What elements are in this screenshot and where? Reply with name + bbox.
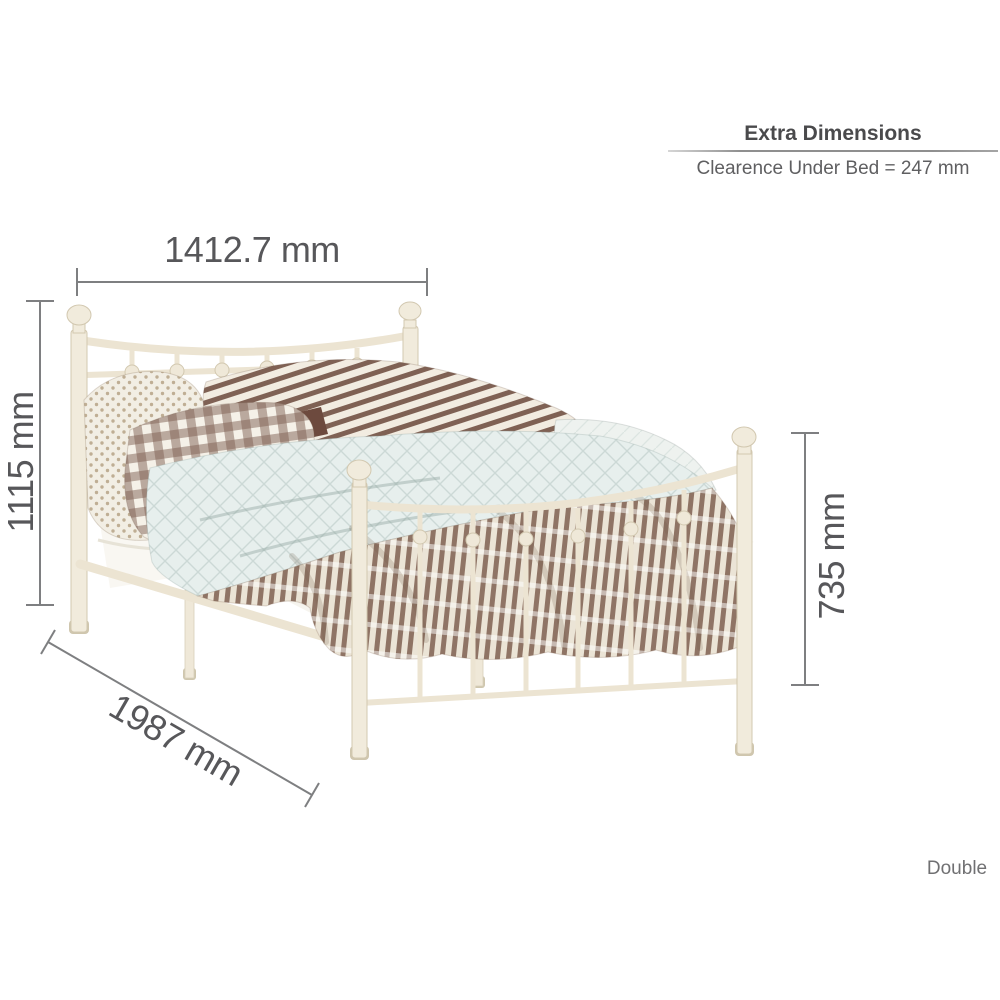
footboard-right-finial: [732, 427, 756, 447]
footboard-left-post: [352, 482, 367, 758]
footboard-left-finial: [347, 460, 371, 480]
product-dimensions-diagram: 1412.7 mm 1115 mm 735 mm 1987 mm Extra D…: [0, 0, 1000, 1000]
headboard-left-finial: [67, 305, 91, 325]
footboard-right-post: [737, 449, 752, 754]
headboard-left-post: [71, 330, 87, 632]
divider-rule: [668, 150, 998, 152]
dimension-label-bed-width: 1412.7 mm: [164, 229, 340, 271]
dimension-label-footboard-height: 735 mm: [811, 492, 853, 619]
size-variant-label: Double: [927, 858, 987, 880]
dimension-label-headboard-height: 1115 mm: [0, 391, 42, 532]
dimension-line-width: [77, 268, 427, 296]
extra-dimensions-panel: Extra Dimensions Clearence Under Bed = 2…: [668, 122, 998, 180]
extra-dimensions-title: Extra Dimensions: [668, 122, 998, 146]
clearance-under-bed-note: Clearence Under Bed = 247 mm: [668, 158, 998, 180]
headboard-right-finial: [399, 302, 421, 320]
